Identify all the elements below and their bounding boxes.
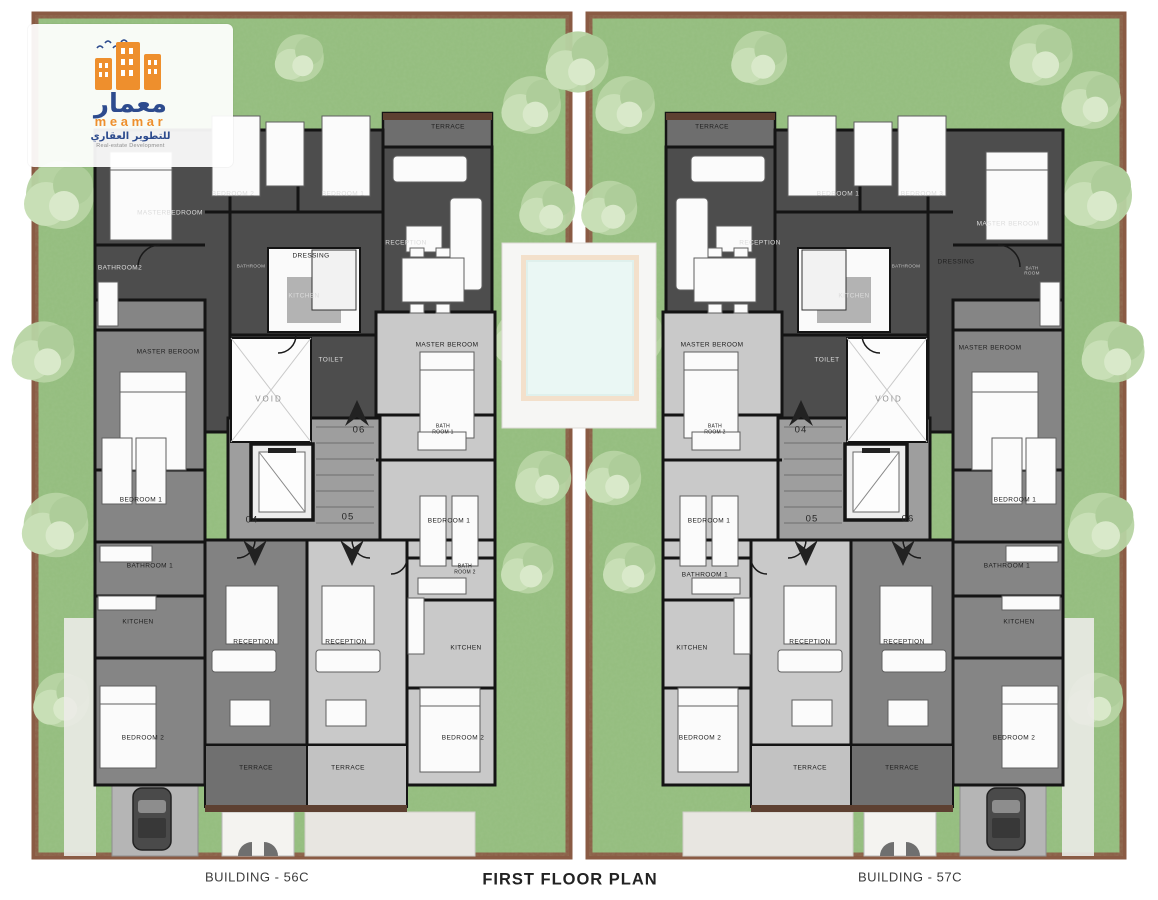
logo-tagline: Real-estate Development (28, 143, 233, 149)
logo-brand-name: meamar (28, 114, 233, 129)
building-57c-caption: BUILDING - 57C (858, 870, 962, 885)
pool (502, 243, 656, 428)
floor-plan-page: MASTERBEDROOMBEDROOM 2BEDROOM 1TERRACERE… (0, 0, 1158, 900)
building-56c-caption: BUILDING - 56C (205, 870, 309, 885)
logo: معمار meamar للتطوير العقاري Real-estate… (28, 24, 233, 167)
meamar-logo-icon (83, 34, 179, 92)
logo-arabic-name: معمار (28, 93, 233, 116)
page-title: FIRST FLOOR PLAN (482, 871, 657, 890)
building-56c-plan (64, 113, 495, 856)
logo-arabic-tagline: للتطوير العقاري (28, 131, 233, 142)
building-57c-plan (663, 113, 1094, 856)
